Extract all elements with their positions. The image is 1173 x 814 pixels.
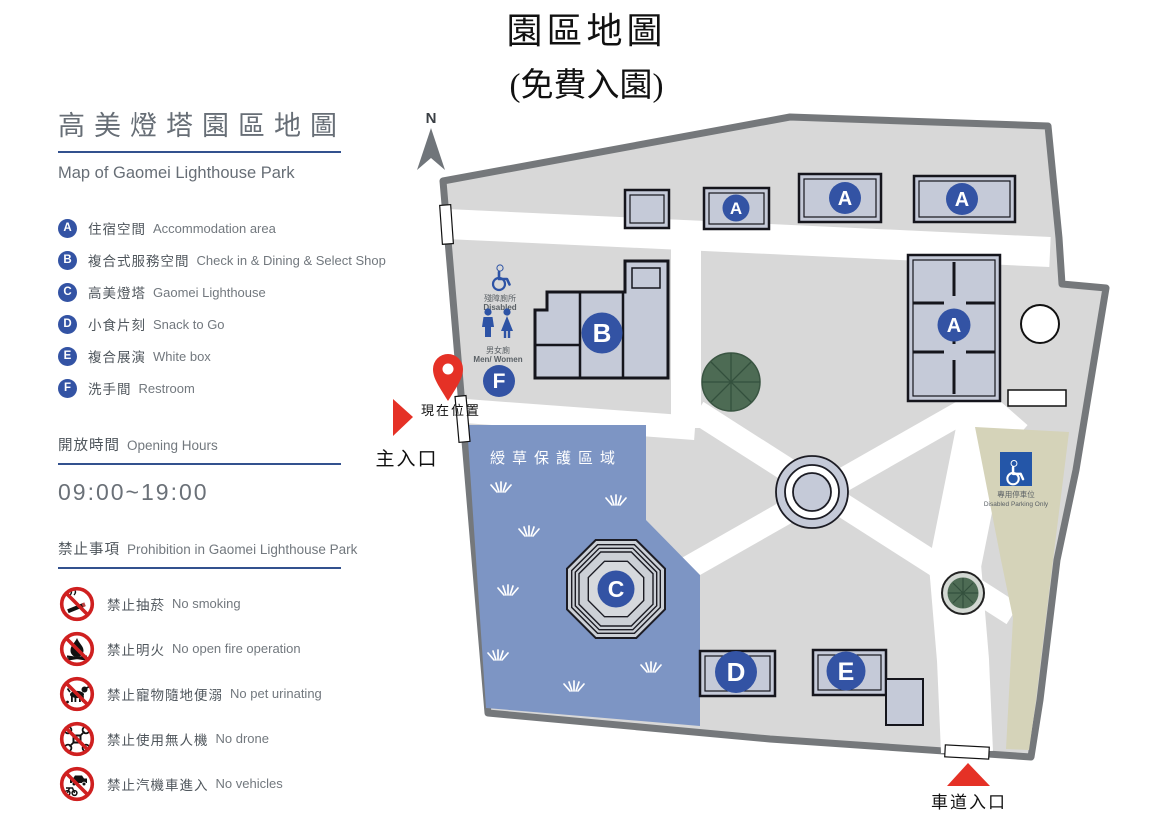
divider — [58, 463, 341, 465]
building-small-bottom — [886, 679, 923, 725]
prohibition-label-zh: 禁止寵物隨地便溺 — [107, 684, 223, 704]
legend-label-en: Snack to Go — [153, 317, 225, 332]
men-women-label-en: Men/ Women — [473, 355, 522, 364]
legend-label-zh: 洗手間 — [88, 378, 132, 398]
main-entrance-label: 主入口 — [375, 448, 438, 470]
divider — [58, 151, 341, 153]
prohibition-label-zh: 禁止抽菸 — [107, 594, 165, 614]
prohibition-item-fire: 禁止明火 No open fire operation — [58, 626, 357, 671]
prohibition-item-drone: 禁止使用無人機 No drone — [58, 716, 357, 761]
no-open-fire-icon — [58, 630, 96, 668]
prohibition-label-en: No vehicles — [216, 776, 283, 791]
legend-label-en: Gaomei Lighthouse — [153, 285, 266, 300]
disabled-restroom-label-zh: 殘障廁所 — [484, 293, 516, 303]
legend-item-b: B 複合式服務空間 Check in & Dining & Select Sho… — [58, 244, 386, 276]
prohibition-item-vehicles: 禁止汽機車進入 No vehicles — [58, 761, 357, 806]
gaomei-park-map-page: { "page_title": {"line1": "園區地圖", "line2… — [0, 0, 1173, 814]
opening-hours-zh: 開放時間 — [58, 434, 120, 455]
prohibition-label-zh: 禁止明火 — [107, 639, 165, 659]
page-title: 園區地圖 (免費入園) — [0, 2, 1173, 106]
legend-badge-a: A — [58, 219, 77, 238]
building-small-top — [625, 190, 669, 228]
legend-list: A 住宿空間 Accommodation area B 複合式服務空間 Chec… — [58, 212, 386, 404]
vehicle-entrance-label: 車道入口 — [931, 793, 1007, 812]
legend-item-d: D 小食片刻 Snack to Go — [58, 308, 386, 340]
prohibition-title-zh: 禁止事項 — [58, 538, 120, 559]
prohibition-label-en: No drone — [216, 731, 269, 746]
no-vehicles-icon — [58, 765, 96, 803]
prohibition-label-en: No open fire operation — [172, 641, 301, 656]
legend-item-e: E 複合展演 White box — [58, 340, 386, 372]
svg-text:A: A — [947, 315, 961, 337]
central-roundabout — [776, 456, 848, 528]
compass-north: N — [417, 110, 445, 170]
legend-label-zh: 住宿空間 — [88, 218, 146, 238]
parking-label-zh: 專用停車位 — [997, 489, 1035, 499]
legend-item-f: F 洗手間 Restroom — [58, 372, 386, 404]
legend-label-en: Restroom — [139, 381, 195, 396]
prohibition-list: 禁止抽菸 No smoking 禁止明火 No open fire operat… — [58, 581, 357, 806]
sidebar-title-en: Map of Gaomei Lighthouse Park — [58, 164, 388, 183]
svg-text:D: D — [727, 657, 746, 687]
svg-text:F: F — [493, 370, 506, 393]
legend-label-en: Accommodation area — [153, 221, 276, 236]
legend-item-a: A 住宿空間 Accommodation area — [58, 212, 386, 244]
prohibition-title-en: Prohibition in Gaomei Lighthouse Park — [127, 542, 357, 557]
vehicle-entrance-gate — [945, 745, 990, 759]
grass-area-label: 綬草保護區域 — [490, 450, 622, 467]
men-women-label-zh: 男女廁 — [486, 345, 510, 355]
prohibition-section: 禁止事項 Prohibition in Gaomei Lighthouse Pa… — [58, 538, 357, 806]
svg-text:A: A — [838, 188, 852, 210]
legend-label-zh: 小食片刻 — [88, 314, 146, 334]
svg-text:A: A — [730, 199, 742, 218]
sidebar: 高美燈塔園區地圖 Map of Gaomei Lighthouse Park A… — [58, 104, 388, 183]
no-smoking-icon — [58, 585, 96, 623]
svg-text:A: A — [955, 189, 969, 211]
legend-badge-b: B — [58, 251, 77, 270]
prohibition-label-en: No pet urinating — [230, 686, 322, 701]
main-entrance-gate — [440, 205, 454, 245]
svg-text:B: B — [593, 318, 612, 348]
legend-badge-c: C — [58, 283, 77, 302]
svg-text:E: E — [838, 658, 855, 686]
legend-badge-d: D — [58, 315, 77, 334]
opening-hours-section: 開放時間 Opening Hours 09:00~19:00 — [58, 434, 341, 506]
main-entrance-arrow-icon — [393, 399, 413, 436]
no-pet-urinating-icon — [58, 675, 96, 713]
opening-hours-value: 09:00~19:00 — [58, 479, 341, 506]
pond-circle — [1021, 305, 1059, 343]
tree-small — [942, 572, 984, 614]
prohibition-item-smoking: 禁止抽菸 No smoking — [58, 581, 357, 626]
legend-label-zh: 複合式服務空間 — [88, 250, 190, 270]
compass-n-label: N — [426, 110, 437, 127]
crossing-bar — [1008, 390, 1066, 406]
legend-item-c: C 高美燈塔 Gaomei Lighthouse — [58, 276, 386, 308]
park-map: 綬草保護區域 — [370, 95, 1173, 814]
parking-label-en: Disabled Parking Only — [984, 501, 1049, 508]
divider — [58, 567, 341, 569]
legend-label-en: White box — [153, 349, 211, 364]
opening-hours-en: Opening Hours — [127, 438, 218, 453]
prohibition-label-en: No smoking — [172, 596, 241, 611]
svg-text:C: C — [608, 576, 625, 602]
current-location-label: 現在位置 — [421, 403, 481, 418]
legend-label-en: Check in & Dining & Select Shop — [197, 253, 386, 268]
north-arrow-icon — [417, 128, 445, 170]
page-title-line1: 園區地圖 — [0, 2, 1173, 54]
prohibition-label-zh: 禁止汽機車進入 — [107, 774, 209, 794]
legend-badge-e: E — [58, 347, 77, 366]
legend-label-zh: 複合展演 — [88, 346, 146, 366]
prohibition-label-zh: 禁止使用無人機 — [107, 729, 209, 749]
sidebar-title-zh: 高美燈塔園區地圖 — [58, 104, 388, 143]
vehicle-entrance-arrow-icon — [947, 763, 990, 786]
legend-label-zh: 高美燈塔 — [88, 282, 146, 302]
prohibition-item-pet: 禁止寵物隨地便溺 No pet urinating — [58, 671, 357, 716]
no-drone-icon — [58, 720, 96, 758]
tree-large — [702, 353, 760, 411]
legend-badge-f: F — [58, 379, 77, 398]
